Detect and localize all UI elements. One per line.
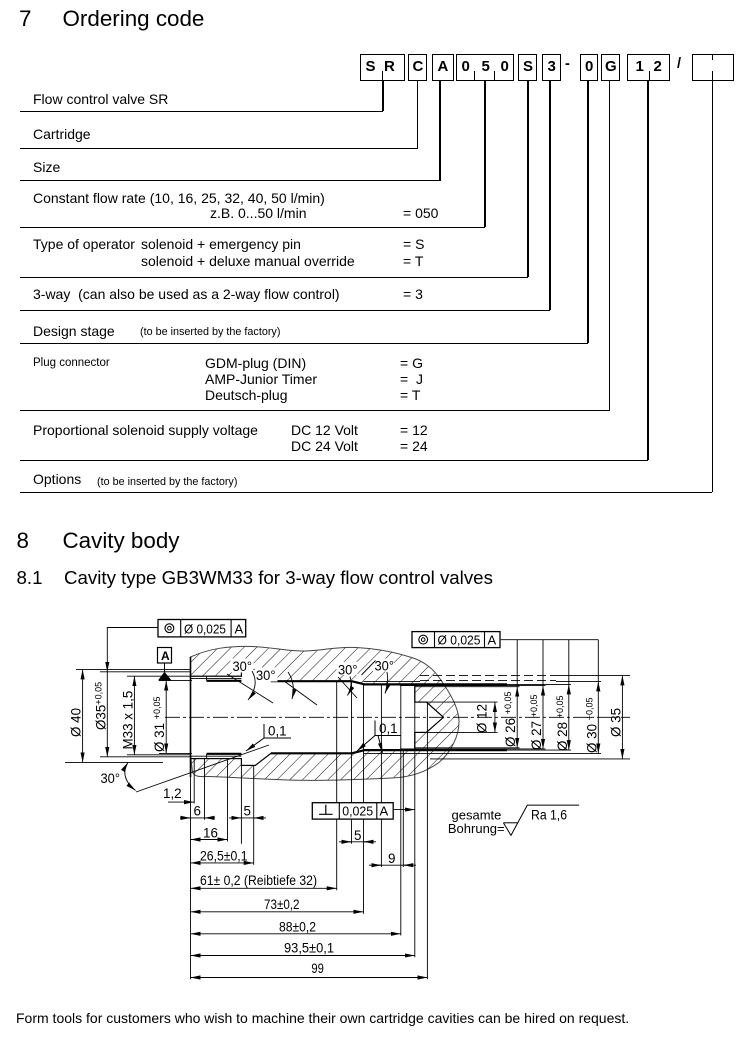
svg-text:26,5±0,1: 26,5±0,1 bbox=[200, 849, 248, 864]
svg-text:93,5±0,1: 93,5±0,1 bbox=[284, 941, 334, 956]
svg-text:Ø 31 +0,05: Ø 31 +0,05 bbox=[152, 696, 167, 752]
svg-text:Ø35+0,05: Ø35+0,05 bbox=[93, 682, 108, 730]
svg-text:Ø 40: Ø 40 bbox=[69, 708, 84, 737]
svg-text:0,025: 0,025 bbox=[342, 804, 373, 819]
svg-text:Bohrung=: Bohrung= bbox=[448, 821, 505, 836]
svg-text:6: 6 bbox=[194, 804, 201, 819]
svg-text:30°: 30° bbox=[256, 668, 276, 683]
svg-text:Ø 28 +0,05: Ø 28 +0,05 bbox=[555, 695, 570, 751]
svg-text:16: 16 bbox=[203, 826, 218, 841]
svg-text:5: 5 bbox=[354, 828, 361, 843]
svg-text:88±0,2: 88±0,2 bbox=[279, 920, 316, 935]
svg-text:Ø 35: Ø 35 bbox=[608, 708, 623, 737]
svg-text:Ø 26 +0,05: Ø 26 +0,05 bbox=[503, 691, 518, 747]
svg-text:A: A bbox=[235, 621, 244, 636]
svg-text:A: A bbox=[488, 633, 497, 648]
svg-text:73±0,2: 73±0,2 bbox=[264, 897, 300, 912]
svg-text:30°: 30° bbox=[233, 659, 253, 674]
svg-text:30°: 30° bbox=[101, 771, 121, 786]
svg-text:99: 99 bbox=[311, 961, 324, 976]
svg-text:A: A bbox=[161, 649, 170, 663]
svg-text:30°: 30° bbox=[375, 659, 395, 674]
svg-text:1,2: 1,2 bbox=[163, 786, 182, 801]
svg-text:5: 5 bbox=[244, 804, 251, 819]
svg-text:Ø 0,025: Ø 0,025 bbox=[438, 633, 481, 648]
svg-text:Ø 12: Ø 12 bbox=[475, 704, 490, 733]
svg-text:0,1: 0,1 bbox=[268, 724, 287, 739]
svg-text:Ø 0,025: Ø 0,025 bbox=[184, 621, 226, 636]
svg-text:Ra 1,6: Ra 1,6 bbox=[531, 808, 567, 823]
svg-text:M33 x 1,5: M33 x 1,5 bbox=[120, 691, 135, 750]
svg-text:61± 0,2 (Reibtiefe 32): 61± 0,2 (Reibtiefe 32) bbox=[200, 873, 317, 888]
svg-text:A: A bbox=[380, 804, 389, 819]
svg-text:Ø 27 +0,05: Ø 27 +0,05 bbox=[529, 694, 544, 750]
svg-text:30°: 30° bbox=[338, 662, 358, 677]
svg-text:Ø 30 +0,05: Ø 30 +0,05 bbox=[584, 697, 599, 753]
svg-text:9: 9 bbox=[388, 851, 395, 866]
